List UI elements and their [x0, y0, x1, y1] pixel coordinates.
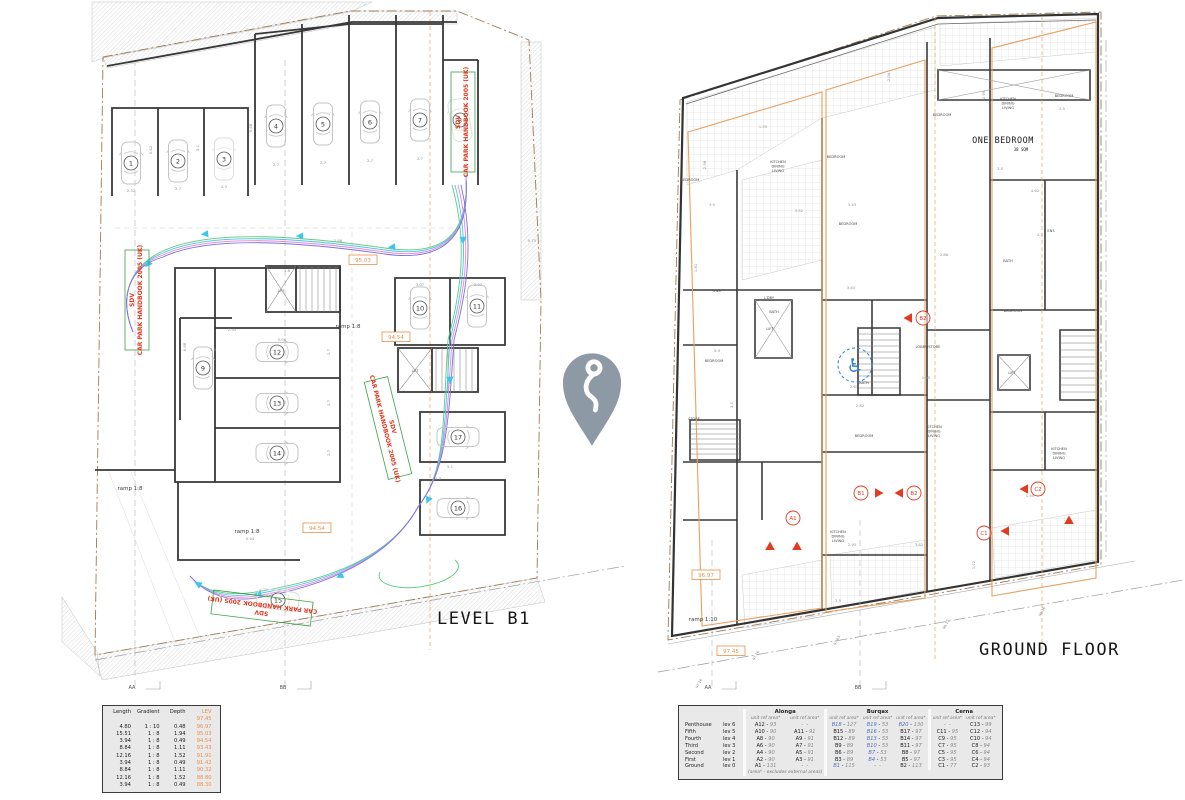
- level-label: lev 6: [721, 722, 745, 729]
- dimension-label: 4.62: [1031, 188, 1040, 193]
- svg-text:KITCHEN: KITCHEN: [1051, 447, 1067, 451]
- ramp-table-cell: 1 : 8: [134, 745, 163, 752]
- parking-bay-number: 13: [273, 399, 281, 407]
- room-label: BEDROOM: [839, 222, 858, 226]
- ramp-table-cell: 1 : 8: [134, 760, 163, 767]
- spot-level: 96.97: [692, 570, 720, 580]
- parking-bay: 9: [192, 347, 215, 389]
- unit-area-cell: B16 - 53: [861, 729, 894, 736]
- ramp-table-cell: 1.11: [163, 767, 189, 774]
- dimension-label: 3.43: [848, 202, 857, 207]
- svg-text:KITCHEN: KITCHEN: [926, 425, 942, 429]
- svg-text:BATH: BATH: [1003, 259, 1013, 263]
- ramp-table-cell: 1.94: [163, 731, 189, 738]
- street-spot-level: 98.36: [1038, 606, 1046, 617]
- dimension-label: 5.68: [248, 123, 253, 132]
- room-label: BEDROOM: [827, 155, 846, 159]
- floor-label: Ground: [683, 763, 721, 770]
- unit-area-cell: C9 - 95: [929, 736, 964, 743]
- parking-bay-number: 11: [473, 302, 481, 310]
- unit-area-cell: B9 - 89: [826, 743, 861, 750]
- yard-area: [742, 160, 822, 280]
- plans-canvas: LIFTLIFT1234567891011121314151617SDVCAR …: [0, 0, 1185, 800]
- unit-area-cell: - -: [929, 722, 964, 729]
- svg-text:STORE: STORE: [688, 417, 701, 421]
- ramp-table-header: LEV: [189, 709, 215, 716]
- unit-area-cell: C4 - 94: [964, 757, 997, 764]
- unit-area-cell: C10 - 94: [964, 736, 997, 743]
- floor-label: Third: [683, 743, 721, 750]
- svg-text:BEDROOM: BEDROOM: [1004, 309, 1023, 313]
- ramp-table-cell: [163, 716, 189, 723]
- dimension-label: 5.9: [714, 348, 721, 353]
- svg-text:95.03: 95.03: [355, 258, 371, 264]
- room-label: ENS: [713, 289, 721, 293]
- ramp-label: ramp 1:8: [117, 486, 143, 492]
- svg-text:BEDROOM: BEDROOM: [933, 113, 952, 117]
- svg-text:LIFT: LIFT: [766, 327, 774, 331]
- parking-bay-number: 1: [129, 159, 133, 167]
- parking-bay-number: 5: [321, 120, 325, 128]
- ramp-table-header: Length: [108, 709, 134, 716]
- entry-arrow: [765, 542, 775, 551]
- unit-marker: B1: [854, 486, 868, 500]
- ramp-table-cell: 88.30: [189, 782, 215, 789]
- ramp-table-cell: 1.52: [163, 753, 189, 760]
- svg-text:ENS: ENS: [1047, 229, 1055, 233]
- room-label: BEDROOM: [681, 178, 700, 182]
- svg-text:LOBBY/STORE: LOBBY/STORE: [916, 345, 942, 349]
- dimension-label: 3.5: [1059, 106, 1066, 111]
- ramp-table-cell: 97.45: [189, 716, 215, 723]
- ramp-table-cell: 1 : 8: [134, 782, 163, 789]
- svg-text:KITCHEN: KITCHEN: [1000, 97, 1016, 101]
- ramp-table-cell: 1 : 8: [134, 738, 163, 745]
- svg-text:C2: C2: [1034, 487, 1041, 493]
- svg-text:LIVING: LIVING: [1002, 106, 1014, 110]
- unit-area-cell: B7 - 53: [861, 750, 894, 757]
- unit-marker: A1: [786, 511, 800, 525]
- svg-text:BATH: BATH: [769, 310, 779, 314]
- dimension-label: 3.52: [795, 208, 804, 213]
- entry-arrow: [904, 313, 913, 323]
- wall: [1060, 330, 1098, 400]
- unit-area-cell: C6 - 94: [964, 750, 997, 757]
- yard-area: [992, 510, 1096, 578]
- sdv-carpark-label: SDVCAR PARK HANDBOOK 2005 (UK): [125, 244, 149, 355]
- svg-text:BEDROOM: BEDROOM: [681, 178, 700, 182]
- ramp-table-cell: 8.84: [108, 767, 134, 774]
- spot-level: 95.03: [349, 255, 377, 265]
- svg-text:A1: A1: [789, 516, 796, 522]
- dimension-label: 3.5: [709, 202, 716, 207]
- unit-area-cell: C13 - 99: [964, 722, 997, 729]
- svg-text:BEDROOM: BEDROOM: [827, 155, 846, 159]
- svg-text:SDV: SDV: [455, 115, 462, 129]
- floor-label: First: [683, 757, 721, 764]
- svg-text:ENS: ENS: [713, 289, 721, 293]
- room-label: BEDROOM: [933, 113, 952, 117]
- yard-area: [687, 27, 935, 185]
- unit-area-cell: C3 - 95: [929, 757, 964, 764]
- unit-area-cell: C8 - 94: [964, 743, 997, 750]
- sdv-carpark-label: SDVCAR PARK HANDBOOK 2005 (UK): [363, 371, 413, 484]
- unit-areas-table: AlongaBurqaxCernaunit ref area*unit ref …: [678, 705, 1003, 780]
- parking-bay: 7: [409, 99, 432, 141]
- dimension-label: 2.3: [221, 184, 228, 189]
- ramp-table-cell: 3.94: [108, 782, 134, 789]
- ramp-label: ramp 1:8: [335, 324, 361, 330]
- dimension-label: 5.42: [148, 145, 153, 154]
- ramp-table-cell: 1 : 10: [134, 724, 163, 731]
- wall: [178, 482, 300, 560]
- svg-text:B1: B1: [857, 491, 864, 497]
- dimension-label: 2.32: [127, 188, 136, 193]
- hatch-band: [95, 578, 545, 680]
- parking-bay: 1: [120, 142, 143, 184]
- unit-marker: C1: [977, 526, 991, 540]
- svg-text:ONE BEDROOM: ONE BEDROOM: [972, 136, 1034, 146]
- unit-area-cell: C2 - 93: [964, 763, 997, 770]
- dimension-label: 2.7: [326, 348, 331, 355]
- room-label: BATH: [769, 310, 779, 314]
- svg-text:C1: C1: [980, 531, 987, 537]
- wheelchair-icon: ♿: [838, 348, 872, 382]
- dimension-label: 2.7: [273, 162, 280, 167]
- dimension-label: 5.9: [210, 347, 217, 352]
- dimension-label: 2.3: [1037, 232, 1044, 237]
- ramp-gradient-table: LengthGradientDepthLEV97.454.801 : 100.4…: [102, 705, 221, 793]
- sdv-carpark-label: SDVCAR PARK HANDBOOK 2005 (UK): [451, 66, 475, 177]
- parking-bay-number: 4: [274, 122, 278, 130]
- ramp-table-cell: 91.91: [189, 753, 215, 760]
- unit-area-cell: B3 - 89: [826, 757, 861, 764]
- unit-table-footnote: (area* - excludes external areas): [745, 770, 826, 776]
- unit-area-cell: A8 - 90: [745, 736, 786, 743]
- ramp-table-cell: [134, 716, 163, 723]
- unit-area-cell: A2 - 90: [745, 757, 786, 764]
- unit-area-cell: B17 - 97: [894, 729, 929, 736]
- floor-label: Fourth: [683, 736, 721, 743]
- svg-text:BEDROOM: BEDROOM: [855, 434, 874, 438]
- parking-bay: 13: [256, 392, 298, 415]
- parking-bay: 5: [312, 103, 335, 145]
- svg-text:BEDROOM: BEDROOM: [1055, 94, 1074, 98]
- ramp-table-header: Depth: [163, 709, 189, 716]
- svg-text:KITCHEN: KITCHEN: [830, 530, 846, 534]
- svg-text:94.54: 94.54: [309, 526, 325, 532]
- level-label: lev 4: [721, 736, 745, 743]
- unit-area-cell: C11 - 95: [929, 729, 964, 736]
- dimension-label: 2.67: [850, 384, 859, 389]
- spot-level: 94.54: [382, 332, 410, 342]
- svg-text:LIVING: LIVING: [928, 434, 940, 438]
- room-label: LOBBY/STORE: [916, 345, 942, 349]
- room-label: BATH: [1003, 259, 1013, 263]
- section-marker: AA: [129, 685, 137, 691]
- dimension-label: 1.55: [1026, 493, 1035, 498]
- unit-area-cell: C1 - 77: [929, 763, 964, 770]
- street-spot-level: 97.16: [752, 650, 760, 661]
- dimension-label: 2.04: [886, 72, 891, 81]
- room-label: STORE: [688, 417, 701, 421]
- ramp-table-cell: 4.80: [108, 724, 134, 731]
- parking-bay: 4: [265, 105, 288, 147]
- dimension-label: 2.7: [367, 158, 374, 163]
- dimension-label: 5.06: [278, 337, 287, 342]
- ramp-table-cell: 93.43: [189, 745, 215, 752]
- dimension-label: 2.95: [981, 90, 986, 99]
- ramp-table-cell: 1 : 8: [134, 731, 163, 738]
- dimension-label: 1.6: [284, 268, 291, 273]
- room-label: LIFT: [1008, 371, 1016, 375]
- section-marker: AA: [705, 685, 713, 691]
- unit-area-cell: B19 - 53: [861, 722, 894, 729]
- entry-arrow: [792, 542, 802, 551]
- parking-bay: 6: [359, 101, 382, 143]
- svg-text:LIFT: LIFT: [278, 289, 286, 293]
- room-label: KITCHENDININGLIVING: [1000, 97, 1016, 110]
- unit-area-cell: - -: [785, 722, 826, 729]
- dimension-label: 2.98: [702, 160, 707, 169]
- svg-text:LIVING: LIVING: [1053, 456, 1065, 460]
- dimension-label: 2.86: [334, 238, 343, 243]
- level-b1-plan: LIFTLIFT1234567891011121314151617SDVCAR …: [62, 2, 625, 691]
- yard-area: [830, 540, 925, 608]
- svg-text:BATH: BATH: [859, 381, 869, 385]
- ramp-table-cell: 0.48: [163, 724, 189, 731]
- dimension-label: 0.94: [246, 536, 255, 541]
- unit-area-cell: A12 - 93: [745, 722, 786, 729]
- room-label: LIFT: [766, 327, 774, 331]
- dimension-label: 3.1: [729, 401, 734, 408]
- dimension-label: 2.95: [848, 542, 857, 547]
- dimension-label: 3.82: [915, 542, 924, 547]
- unit-area-cell: B2 - 113: [894, 763, 929, 770]
- svg-text:DINING: DINING: [771, 164, 784, 168]
- dimension-label: 1.95: [922, 375, 931, 380]
- dimension-label: 3.5: [835, 598, 842, 603]
- svg-text:DINING: DINING: [1001, 101, 1014, 105]
- parking-bay-number: 2: [176, 157, 180, 165]
- dimension-label: 6.88: [182, 342, 187, 351]
- ramp-label: ramp 1:8: [234, 529, 260, 535]
- dimension-label: 2.7: [326, 449, 331, 456]
- street-spot-level: 97.16: [695, 678, 703, 689]
- svg-text:BEDROOM: BEDROOM: [705, 359, 724, 363]
- svg-text:38 SQM: 38 SQM: [1014, 147, 1029, 152]
- room-label: KITCHENDININGLIVING: [1051, 447, 1067, 460]
- parking-bay: 10: [409, 287, 432, 329]
- spot-level: 97.45: [717, 646, 745, 656]
- unit-area-cell: B12 - 89: [826, 736, 861, 743]
- svg-text:96.97: 96.97: [698, 573, 714, 579]
- unit-area-cell: B8 - 97: [894, 750, 929, 757]
- ramp-table-cell: 94.54: [189, 738, 215, 745]
- parking-bay: 16: [437, 497, 479, 520]
- svg-text:B2: B2: [910, 491, 917, 497]
- unit-area-cell: A4 - 90: [745, 750, 786, 757]
- ramp-table-cell: 1 : 8: [134, 753, 163, 760]
- unit-area-cell: A6 - 90: [745, 743, 786, 750]
- ramp-table-cell: 90.32: [189, 767, 215, 774]
- dimension-label: 5.1: [195, 144, 200, 151]
- unit-area-cell: A10 - 90: [745, 729, 786, 736]
- dimension-label: 2.82: [856, 403, 865, 408]
- svg-text:KITCHEN: KITCHEN: [770, 160, 786, 164]
- dimension-label: 3.07: [416, 282, 425, 287]
- unit-area-cell: B20 - 130: [894, 722, 929, 729]
- level-b1-title: LEVEL B1: [437, 609, 531, 629]
- parking-bay: 11: [466, 285, 489, 327]
- ramp-table-cell: 8.84: [108, 745, 134, 752]
- room-label: BEDROOM: [1004, 309, 1023, 313]
- unit-marker: B2: [907, 486, 921, 500]
- ramp-table-cell: 0.49: [163, 738, 189, 745]
- ramp-table-cell: 91.42: [189, 760, 215, 767]
- unit-area-cell: B1 - 115: [826, 763, 861, 770]
- unit-area-cell: B10 - 53: [861, 743, 894, 750]
- entry-arrow: [875, 488, 884, 498]
- svg-text:LIVING: LIVING: [772, 169, 784, 173]
- section-marker: BB: [280, 685, 287, 691]
- wall: [175, 268, 340, 482]
- svg-text:CAR PARK HANDBOOK 2005 (UK): CAR PARK HANDBOOK 2005 (UK): [137, 244, 144, 355]
- room-label: BATH: [859, 381, 869, 385]
- unit-area-cell: A7 - 91: [785, 743, 826, 750]
- room-label: L'DRY: [764, 296, 775, 300]
- dimension-label: 2.7: [175, 186, 182, 191]
- svg-text:SDV: SDV: [129, 293, 136, 307]
- floor-label: Fifth: [683, 729, 721, 736]
- ramp-table-cell: 3.94: [108, 738, 134, 745]
- dimension-label: 3.5: [997, 166, 1004, 171]
- one-bedroom-label: ONE BEDROOM38 SQM: [972, 136, 1034, 152]
- svg-text:L'DRY: L'DRY: [764, 296, 775, 300]
- dimension-label: 3.43: [847, 285, 856, 290]
- section-marker: BB: [855, 685, 862, 691]
- unit-area-cell: A3 - 91: [785, 757, 826, 764]
- ramp-table-cell: 1 : 8: [134, 775, 163, 782]
- svg-text:DINING: DINING: [927, 429, 940, 433]
- parking-bay-number: 12: [273, 348, 281, 356]
- ramp-table-cell: 1 : 8: [134, 767, 163, 774]
- svg-text:94.54: 94.54: [388, 335, 404, 341]
- unit-area-cell: B11 - 97: [894, 743, 929, 750]
- ramp-table-cell: 15.51: [108, 731, 134, 738]
- level-label: lev 0: [721, 763, 745, 770]
- street-spot-level: 97.63: [833, 635, 841, 646]
- parking-bay: 2: [167, 140, 190, 182]
- svg-text:DINING: DINING: [831, 534, 844, 538]
- ground-floor-title: GROUND FLOOR: [979, 640, 1120, 660]
- unit-area-cell: B14 - 97: [894, 736, 929, 743]
- ramp-table-cell: 1.11: [163, 745, 189, 752]
- svg-text:B2: B2: [919, 316, 926, 322]
- room-label: KITCHENDININGLIVING: [830, 530, 846, 543]
- ramp-table-cell: 0.49: [163, 760, 189, 767]
- ramp-label: ramp 1:10: [689, 617, 718, 623]
- unit-marker: B2: [916, 311, 930, 325]
- hatch-band: [62, 597, 100, 676]
- room-label: BEDROOM: [855, 434, 874, 438]
- unit-area-cell: B4 - 53: [861, 757, 894, 764]
- room-label: BEDROOM: [705, 359, 724, 363]
- path-arrow: [388, 243, 396, 251]
- ramp-table-cell: 12.16: [108, 753, 134, 760]
- dimension-label: 5.3: [435, 476, 442, 481]
- parking-bay-number: 6: [368, 118, 372, 126]
- parking-bay-number: 9: [201, 364, 205, 372]
- room-label: BEDROOM: [1055, 94, 1074, 98]
- level-label: lev 2: [721, 750, 745, 757]
- parking-bay-number: 16: [454, 504, 462, 512]
- unit-area-cell: - -: [861, 763, 894, 770]
- svg-text:BEDROOM: BEDROOM: [839, 222, 858, 226]
- parking-bay-number: 14: [273, 449, 281, 457]
- dimension-label: 3.07: [474, 282, 483, 287]
- ramp-table-cell: 1.52: [163, 775, 189, 782]
- dimension-label: 2.7: [417, 156, 424, 161]
- svg-text:LIFT: LIFT: [1008, 371, 1016, 375]
- dimension-label: 2.93: [228, 327, 237, 332]
- ramp-table-cell: [108, 716, 134, 723]
- unit-area-cell: A11 - 91: [785, 729, 826, 736]
- unit-area-cell: B18 - 127: [826, 722, 861, 729]
- ground-floor-plan: BEDROOMKITCHENDININGLIVINGBEDROOMBEDROOM…: [658, 12, 1183, 691]
- parking-bay-number: 17: [454, 433, 462, 441]
- unit-area-cell: A9 - 91: [785, 736, 826, 743]
- unit-area-cell: C12 - 94: [964, 729, 997, 736]
- dimension-label: 5.1: [447, 464, 454, 469]
- drawing-sheet: { "colors": { "red": "#e23b22", "orange"…: [0, 0, 1185, 800]
- dimension-label: 2.86: [940, 252, 949, 257]
- svg-text:CAR PARK HANDBOOK 2005 (UK): CAR PARK HANDBOOK 2005 (UK): [463, 66, 470, 177]
- svg-text:LIVING: LIVING: [832, 539, 844, 543]
- dimension-label: 2.7: [326, 399, 331, 406]
- ramp-table-cell: 96.97: [189, 724, 215, 731]
- room-label: ENS: [1047, 229, 1055, 233]
- parking-bay-number: 7: [418, 116, 422, 124]
- dimension-label: 1.55: [759, 124, 768, 129]
- dimension-label: 1.81: [693, 263, 698, 272]
- parking-bay-number: 10: [416, 304, 424, 312]
- location-pin-icon[interactable]: [563, 353, 621, 445]
- level-label: lev 3: [721, 743, 745, 750]
- unit-area-cell: B13 - 53: [861, 736, 894, 743]
- ramp-table-cell: 12.16: [108, 775, 134, 782]
- unit-area-cell: B6 - 89: [826, 750, 861, 757]
- svg-text:♿: ♿: [846, 355, 863, 377]
- ramp-table-cell: 3.94: [108, 760, 134, 767]
- dimension-label: 1.72: [971, 560, 976, 569]
- dimension-label: 2.7: [320, 160, 327, 165]
- unit-area-cell: C7 - 95: [929, 743, 964, 750]
- unit-area-cell: C5 - 95: [929, 750, 964, 757]
- svg-text:97.45: 97.45: [723, 649, 739, 655]
- unit-area-cell: B5 - 97: [894, 757, 929, 764]
- floor-label: Second: [683, 750, 721, 757]
- svg-text:DINING: DINING: [1052, 451, 1065, 455]
- room-label: KITCHENDININGLIVING: [926, 425, 942, 438]
- path-arrow: [201, 230, 209, 238]
- ramp-table-cell: 88.80: [189, 775, 215, 782]
- parking-bay-number: 3: [222, 155, 226, 163]
- dimension-label: 0.75: [528, 238, 537, 243]
- entry-arrow: [895, 488, 904, 498]
- room-label: KITCHENDININGLIVING: [770, 160, 786, 173]
- unit-area-cell: B15 - 89: [826, 729, 861, 736]
